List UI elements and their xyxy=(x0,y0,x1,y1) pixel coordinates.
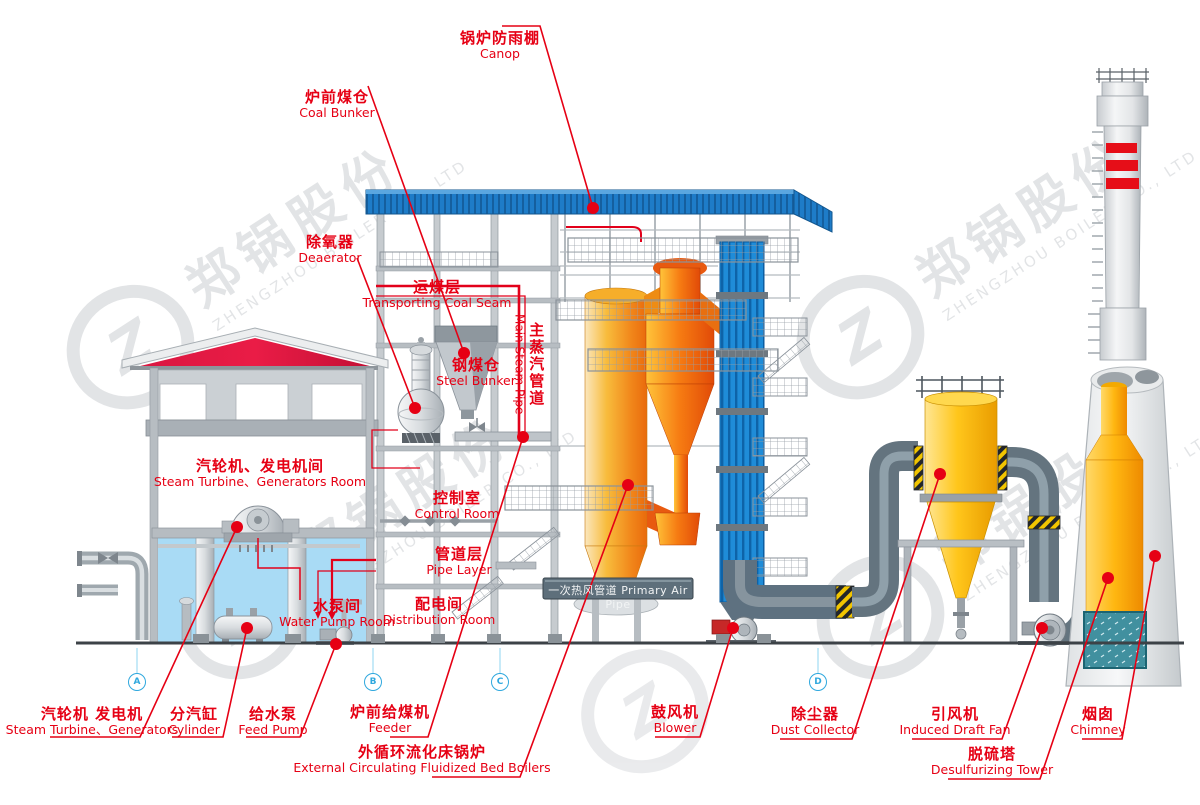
section-marker-b: B xyxy=(364,673,382,691)
label-main-steam-pipe: Main Steam Pipe 主蒸汽管道 xyxy=(512,314,544,414)
label-induced-draft-fan: 引风机 Induced Draft Fan xyxy=(899,706,1010,737)
section-line-c xyxy=(500,648,501,673)
section-marker-d: D xyxy=(809,673,827,691)
label-cylinder: 分汽缸 Cylinder xyxy=(168,706,220,737)
label-dust-collector: 除尘器 Dust Collector xyxy=(771,706,860,737)
section-line-d xyxy=(818,648,819,673)
label-feeder: 炉前给煤机 Feeder xyxy=(350,704,430,735)
section-line-b xyxy=(373,648,374,673)
label-control-room: 控制室 Control Room xyxy=(415,490,500,521)
label-canopy: 锅炉防雨棚 Canop xyxy=(460,30,540,61)
section-marker-c: C xyxy=(491,673,509,691)
label-coal-seam: 运煤层 Transporting Coal Seam xyxy=(363,279,512,310)
label-ecfb-boiler: 外循环流化床锅炉 External Circulating Fluidized … xyxy=(293,744,550,775)
label-primary-air-pipe: 一次热风管道 Primary Air Pipe xyxy=(543,582,693,611)
label-feed-pump: 给水泵 Feed Pump xyxy=(238,706,307,737)
label-pipe-layer: 管道层 Pipe Layer xyxy=(426,546,491,577)
plant-diagram-page: Z 郑锅股份 ZHENGZHOU BOILER CO., LTD Z 郑锅股份 … xyxy=(0,0,1200,805)
label-blower: 鼓风机 Blower xyxy=(651,704,699,735)
coal-feeder-conveyor xyxy=(455,432,551,441)
label-distribution-room: 配电间 Distribution Room xyxy=(383,596,496,627)
label-desulfurizing-tower: 脱硫塔 Desulfurizing Tower xyxy=(931,746,1053,777)
dust-collector-unit xyxy=(898,376,1024,643)
label-deaerator: 除氧器 Deaerator xyxy=(298,234,361,265)
section-line-a xyxy=(137,648,138,673)
label-steel-bunker: 钢煤仓 Steel Bunker xyxy=(436,357,516,388)
section-marker-a: A xyxy=(128,673,146,691)
label-water-pump-room: 水泵间 Water Pump Room xyxy=(279,598,395,629)
label-turbine-generators: 汽轮机 发电机 Steam Turbine、Generators xyxy=(6,706,179,737)
label-coal-bunker: 炉前煤仓 Coal Bunker xyxy=(299,89,375,120)
plant-diagram xyxy=(0,0,1200,805)
label-turbine-room: 汽轮机、发电机间 Steam Turbine、Generators Room xyxy=(154,458,366,489)
desulfurizing-tower-unit xyxy=(1066,367,1181,686)
label-chimney: 烟囱 Chimney xyxy=(1070,706,1125,737)
building-windows xyxy=(160,384,362,420)
chimney-stack xyxy=(1088,68,1149,360)
